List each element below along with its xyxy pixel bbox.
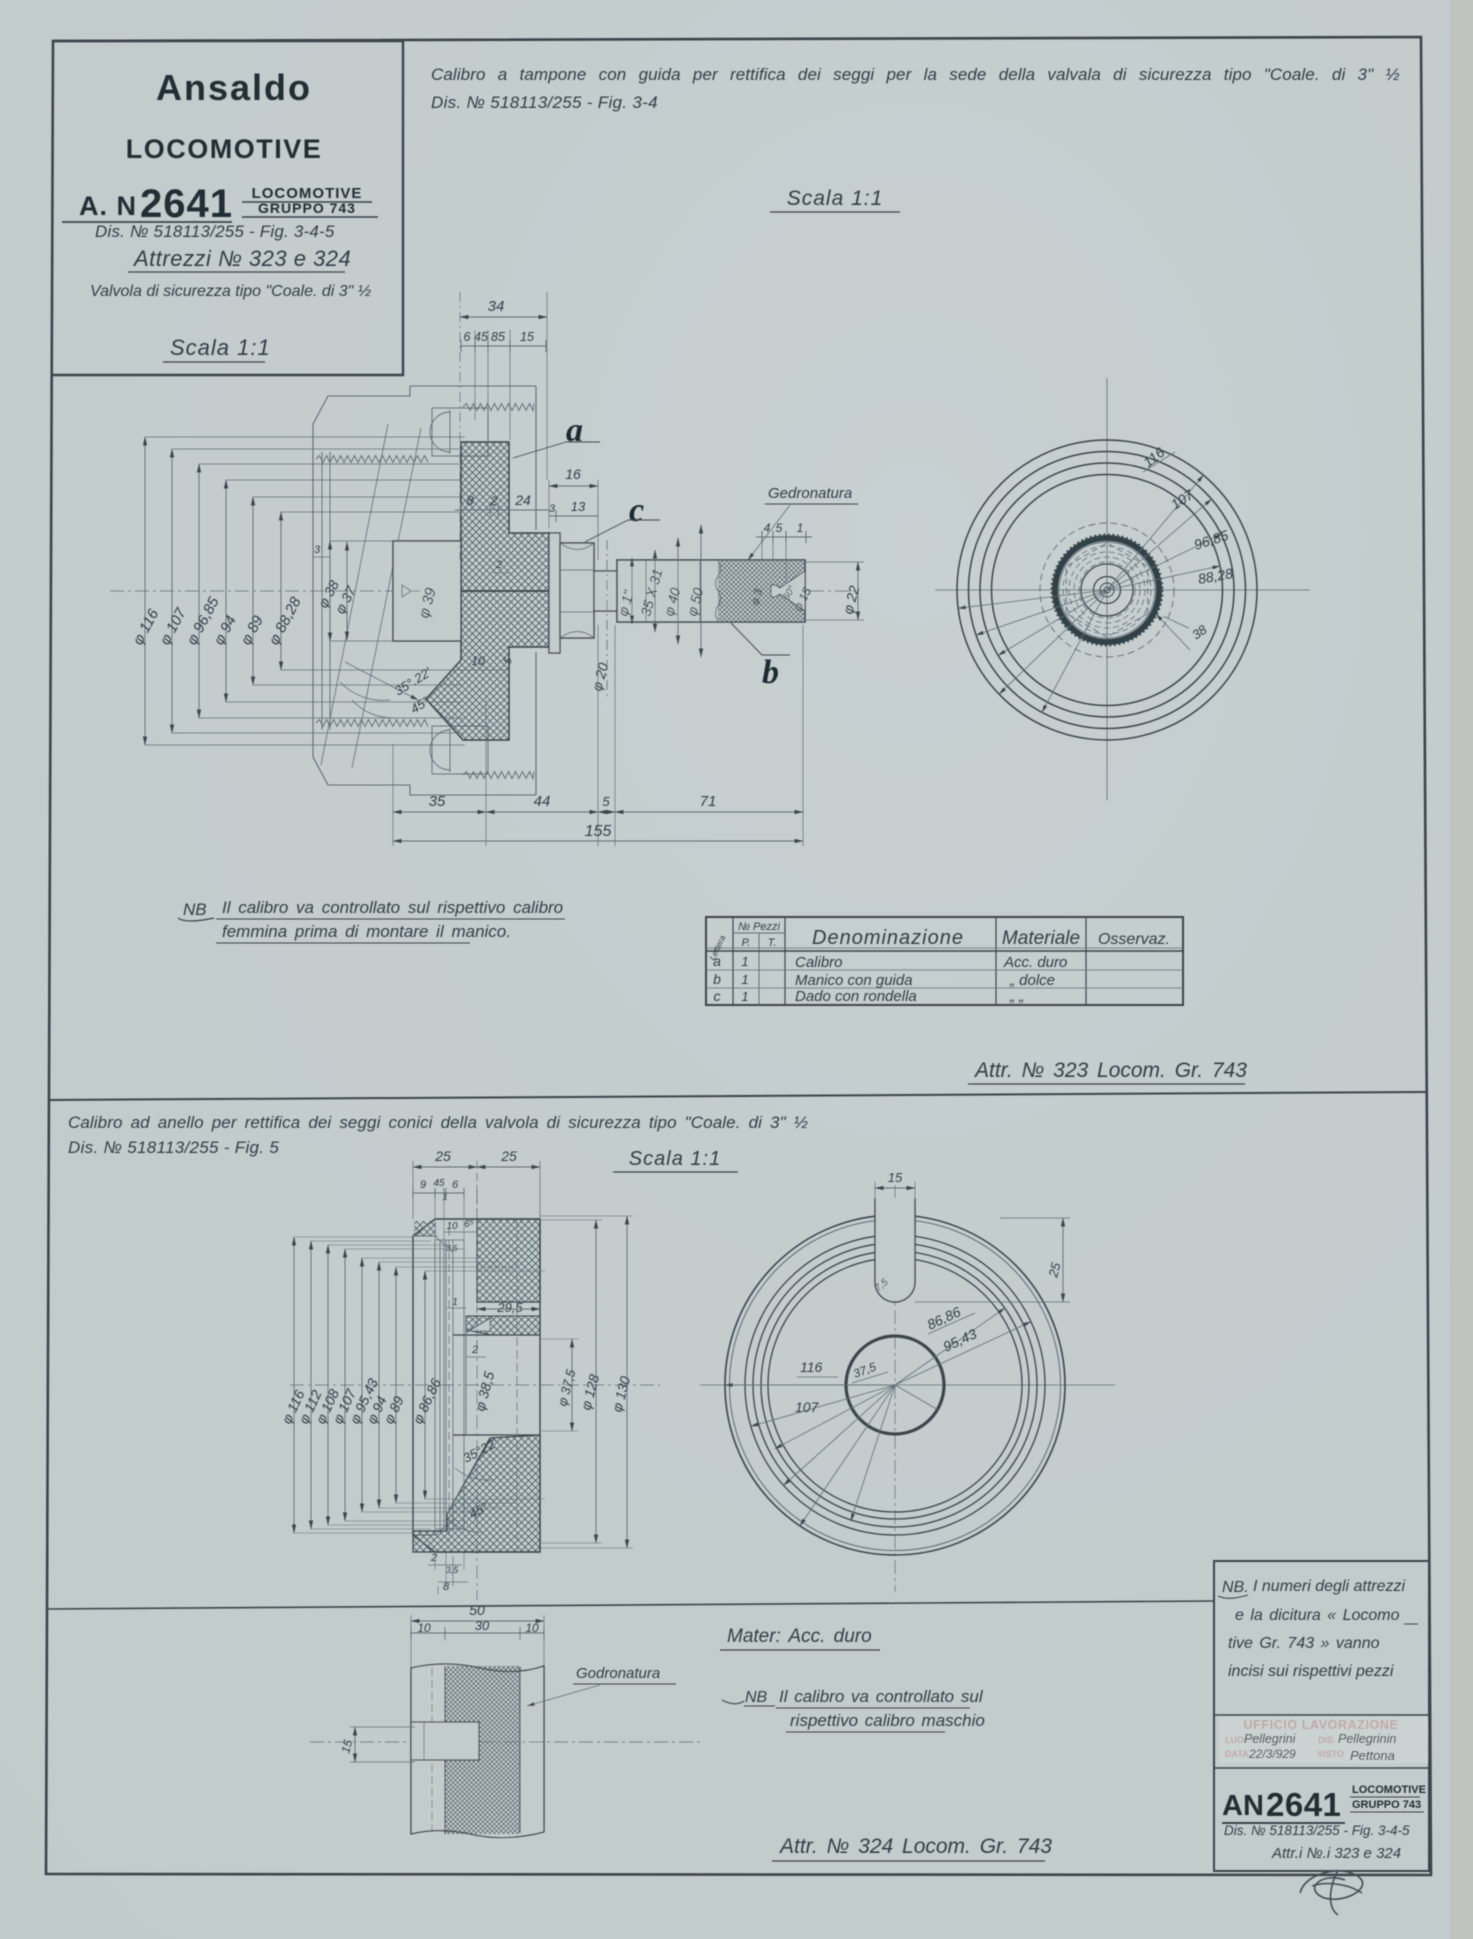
svg-text:DIS.: DIS.	[1318, 1735, 1336, 1745]
svg-text:24: 24	[514, 492, 531, 508]
svg-text:10: 10	[471, 654, 485, 668]
svg-text:Attr. № 324 Locom. Gr. 743: Attr. № 324 Locom. Gr. 743	[778, 1835, 1052, 1858]
svg-text:Dis. № 518113/255 - Fig. 3-4-5: Dis. № 518113/255 - Fig. 3-4-5	[95, 222, 335, 241]
svg-text:VISTO: VISTO	[1317, 1749, 1344, 1759]
svg-text:Attr.i №.i 323 e 324: Attr.i №.i 323 e 324	[1271, 1845, 1401, 1862]
svg-text:Gedronatura: Gedronatura	[768, 485, 852, 502]
svg-text:P.: P.	[742, 937, 751, 949]
svg-text:5: 5	[776, 521, 783, 535]
svg-text:2: 2	[495, 559, 502, 571]
svg-text:45: 45	[474, 330, 488, 344]
svg-text:Ansaldo: Ansaldo	[156, 67, 312, 108]
svg-text:10: 10	[446, 1221, 458, 1232]
svg-text:LOCOMOTIVE: LOCOMOTIVE	[1352, 1784, 1426, 1796]
svg-text:c: c	[629, 492, 644, 529]
svg-text:2641: 2641	[1266, 1786, 1341, 1823]
svg-text:29,5: 29,5	[496, 1300, 523, 1315]
svg-text:„ „: „ „	[1009, 988, 1024, 1005]
svg-text:9: 9	[420, 1179, 426, 1191]
svg-text:incisi sui rispettivi pezzi: incisi sui rispettivi pezzi	[1228, 1663, 1394, 1680]
svg-text:1: 1	[741, 989, 748, 1004]
svg-text:femmina prima di montare il ma: femmina prima di montare il manico.	[222, 922, 511, 941]
svg-text:1: 1	[741, 972, 748, 987]
svg-text:a: a	[566, 412, 583, 449]
svg-text:Manico con guida: Manico con guida	[795, 972, 913, 989]
svg-text:Attr. № 323 Locom. Gr. 743: Attr. № 323 Locom. Gr. 743	[973, 1059, 1247, 1082]
svg-text:rispettivo calibro maschio: rispettivo calibro maschio	[790, 1711, 985, 1730]
svg-text:NB: NB	[745, 1689, 768, 1706]
svg-text:LOCOMOTIVE: LOCOMOTIVE	[126, 134, 323, 164]
svg-text:3: 3	[314, 544, 321, 556]
svg-text:3: 3	[549, 503, 556, 515]
svg-text:15: 15	[888, 1170, 903, 1185]
svg-text:GRUPPO 743: GRUPPO 743	[1352, 1799, 1421, 1811]
svg-text:№ Pezzi: № Pezzi	[738, 921, 780, 933]
svg-text:a: a	[713, 953, 721, 969]
svg-text:1: 1	[452, 1297, 458, 1308]
svg-text:Valvola di sicurezza tipo "Coa: Valvola di sicurezza tipo "Coale. di 3" …	[90, 283, 371, 300]
svg-text:30: 30	[475, 1618, 490, 1633]
svg-text:8: 8	[466, 493, 474, 508]
svg-text:NB.: NB.	[1222, 1579, 1249, 1596]
svg-text:Dis. № 518113/255 - Fig. 5: Dis. № 518113/255 - Fig. 5	[68, 1138, 279, 1157]
svg-text:Calibro ad anello per rettific: Calibro ad anello per rettifica dei segg…	[68, 1113, 808, 1132]
svg-text:15: 15	[520, 330, 534, 344]
svg-text:155: 155	[585, 823, 612, 840]
svg-text:85: 85	[491, 330, 505, 344]
svg-text:Acc. duro: Acc. duro	[1003, 954, 1067, 971]
svg-text:Calibro: Calibro	[795, 954, 843, 971]
svg-text:Materiale: Materiale	[1002, 928, 1080, 949]
svg-text:8: 8	[443, 1581, 450, 1593]
svg-text:35: 35	[429, 793, 446, 810]
svg-text:3,5: 3,5	[446, 1244, 458, 1253]
svg-text:71: 71	[700, 793, 717, 810]
svg-text:3,5: 3,5	[446, 1565, 460, 1575]
svg-text:107: 107	[795, 1399, 820, 1415]
svg-text:tive Gr. 743 » vanno: tive Gr. 743 » vanno	[1228, 1635, 1380, 1652]
svg-text:25: 25	[500, 1148, 517, 1164]
svg-text:b: b	[713, 971, 721, 987]
svg-text:45: 45	[433, 1178, 445, 1189]
svg-text:NB: NB	[183, 900, 207, 919]
svg-text:Il calibro va controllato sul: Il calibro va controllato sul rispettivo…	[222, 898, 563, 917]
svg-text:T.: T.	[768, 937, 777, 949]
svg-text:b: b	[762, 654, 779, 691]
svg-text:5: 5	[602, 794, 610, 809]
svg-text:e la dicitura « Locomo: e la dicitura « Locomo	[1235, 1607, 1400, 1624]
svg-text:1: 1	[442, 1192, 447, 1202]
svg-text:6⁵: 6⁵	[464, 1219, 474, 1230]
svg-text:Pettona: Pettona	[1350, 1748, 1395, 1763]
svg-text:Dis. № 518113/255 - Fig. 3-4: Dis. № 518113/255 - Fig. 3-4	[431, 93, 658, 112]
svg-text:Mater: Acc. duro: Mater: Acc. duro	[727, 1626, 872, 1647]
svg-text:Pellegrini: Pellegrini	[1244, 1732, 1297, 1746]
svg-text:2: 2	[430, 1552, 437, 1564]
svg-text:Il calibro va controllato su: Il calibro va controllato sul	[779, 1687, 984, 1706]
svg-text:116: 116	[800, 1359, 823, 1375]
svg-text:c: c	[714, 988, 721, 1004]
svg-text:Dis. № 518113/255 - Fig. 3-4-5: Dis. № 518113/255 - Fig. 3-4-5	[1224, 1823, 1410, 1838]
svg-text:1: 1	[797, 521, 804, 535]
svg-text:16: 16	[565, 466, 581, 482]
svg-text:DATA: DATA	[1225, 1749, 1249, 1759]
svg-text:Denominazione: Denominazione	[812, 927, 964, 949]
svg-text:„ dolce: „ dolce	[1009, 972, 1055, 989]
svg-text:10: 10	[525, 1621, 539, 1635]
svg-text:Osservaz.: Osservaz.	[1098, 931, 1170, 948]
svg-text:34: 34	[488, 298, 505, 315]
svg-text:Scala 1:1: Scala 1:1	[170, 335, 271, 360]
svg-text:2: 2	[490, 494, 498, 508]
svg-text:AN: AN	[1222, 1790, 1264, 1822]
svg-text:2641: 2641	[140, 182, 233, 226]
svg-text:6: 6	[452, 1179, 459, 1191]
svg-text:1: 1	[741, 954, 748, 969]
svg-text:2: 2	[471, 1344, 478, 1356]
svg-text:50: 50	[469, 1602, 485, 1618]
svg-text:Scala 1:1: Scala 1:1	[629, 1148, 721, 1170]
svg-text:Pellegrinin: Pellegrinin	[1338, 1732, 1396, 1746]
svg-text:13: 13	[571, 499, 586, 514]
svg-text:LUO: LUO	[1225, 1735, 1244, 1745]
svg-text:UFFICIO LAVORAZIONE: UFFICIO LAVORAZIONE	[1244, 1718, 1399, 1732]
svg-text:6: 6	[464, 330, 471, 344]
svg-text:Godronatura: Godronatura	[576, 1665, 660, 1682]
svg-text:4: 4	[764, 521, 771, 535]
svg-text:44: 44	[534, 793, 551, 810]
svg-text:Calibro a tampone con guida pe: Calibro a tampone con guida per rettific…	[431, 65, 1400, 84]
svg-text:10: 10	[417, 1621, 431, 1635]
svg-text:A. N: A. N	[79, 191, 137, 221]
svg-text:22/3/929: 22/3/929	[1248, 1747, 1296, 1761]
svg-text:Dado con rondella: Dado con rondella	[795, 988, 917, 1005]
svg-text:Scala 1:1: Scala 1:1	[787, 187, 884, 210]
svg-text:Attrezzi № 323 e 324: Attrezzi № 323 e 324	[132, 246, 351, 271]
svg-text:25: 25	[434, 1148, 451, 1164]
svg-text:I numeri degli attrezzi: I numeri degli attrezzi	[1253, 1578, 1406, 1595]
